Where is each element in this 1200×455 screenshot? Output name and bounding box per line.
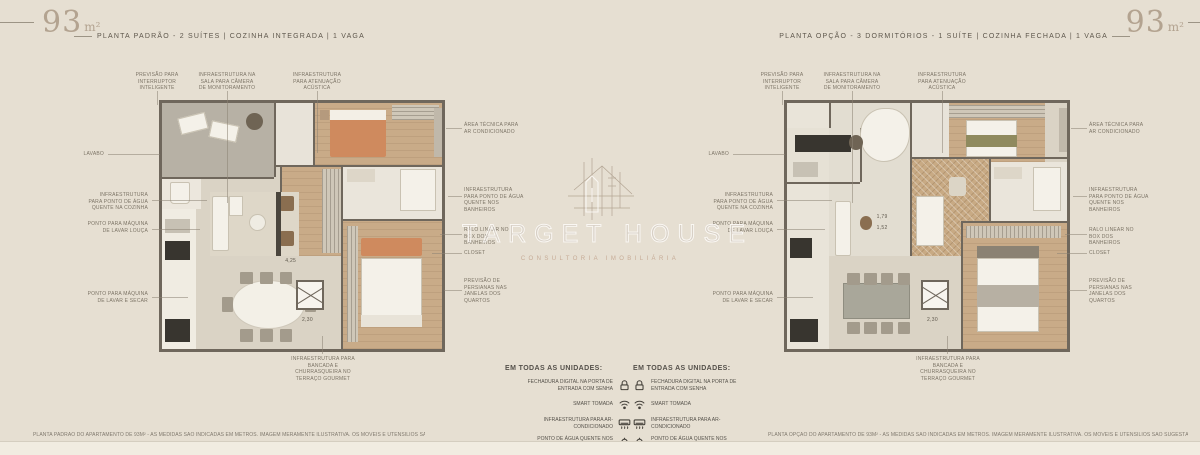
dining-chair [240,329,253,341]
pouf [280,196,294,211]
plant [849,135,863,150]
ac-technical-area [1059,108,1067,152]
callout-ac-area: ÁREA TÉCNICA PARA AR CONDICIONADO [464,122,520,135]
callout-bbq-terrace: INFRAESTRUTURA PARA BANCADA E CHURRASQUE… [910,356,986,382]
callout-lavabo: LAVABO [62,151,104,158]
disclaimer-left: PLANTA PADRÃO DO APARTAMENTO DE 93M² - A… [33,432,425,438]
wall [829,103,831,128]
washer [165,319,190,341]
watermark-tagline: CONSULTORIA IMOBILIÁRIA [462,256,738,262]
wifi-icon [633,398,646,411]
kitchen-sink [165,219,190,234]
dining-chair [864,322,877,334]
ac-unit-icon [633,417,646,430]
wardrobe [949,105,1044,117]
wardrobe [347,226,358,342]
leader-line [1071,128,1087,129]
dining-chair [260,329,273,341]
callout-washer-dryer: PONTO PARA MÁQUINA DE LAVAR E SECAR [711,291,773,304]
dining-table [843,283,910,320]
closet-cabinet [966,226,1061,238]
bed-pillows [330,110,386,120]
dimension-label: 1,79 [877,214,888,220]
callout-blinds: PREVISÃO DE PERSIANAS NAS JANELAS DOS QU… [464,278,516,304]
dining-chair [280,272,293,284]
pouf [280,231,294,246]
wifi-icon [618,398,631,411]
daybed [916,196,944,245]
wall [989,157,991,221]
feature-text: FECHADURA DIGITAL NA PORTA DE ENTRADA CO… [513,379,613,392]
floor-plan-sheet: 93 m² PLANTA PADRÃO - 2 SUÍTES | COZINHA… [0,0,1200,455]
dining-chair [864,273,877,285]
armchair [949,177,966,197]
callout-linear-drain: RALO LINEAR NO BOX DOS BANHEIROS [1089,227,1145,247]
header-right-edge-line [1188,22,1200,23]
leader-line [777,297,813,298]
tv-rack [276,192,280,256]
leader-line [1069,290,1087,291]
bottom-strip [0,441,1200,455]
dining-chair [847,322,860,334]
dining-chair [881,273,894,285]
washer [790,319,818,341]
wall [274,165,442,167]
leader-line [108,154,160,155]
bed-headboard [977,246,1039,258]
leader-line [1057,253,1087,254]
leader-line [322,336,323,354]
sofa [835,201,852,255]
leader-line [777,229,825,230]
smart-lock-icon [633,379,646,392]
leader-line [446,128,462,129]
right-plan-title: PLANTA OPÇÃO - 3 DORMITÓRIOS - 1 SUÍTE |… [779,33,1108,40]
dining-chair [881,322,894,334]
nightstand [320,110,328,120]
callout-acoustic: INFRAESTRUTURA PARA ATENUAÇÃO ACÚSTICA [913,72,971,92]
pouf [860,216,873,230]
cooktop [790,238,812,258]
leader-line [1065,234,1087,235]
leader-line [852,91,853,203]
leader-line [947,336,948,354]
right-area-unit: m² [1168,20,1184,34]
wall [961,221,1067,223]
bathtub [1033,167,1061,211]
leader-line [227,91,228,203]
bed-pillows [361,315,423,327]
dimension-label: 4,25 [285,258,296,264]
leader-line [733,154,785,155]
leader-line [942,91,943,153]
right-area-label: 93 m² [1126,8,1184,38]
callout-dishwasher: PONTO PARA MÁQUINA DE LAVAR LOUÇA [86,221,148,234]
left-area-label: 93 m² [42,8,100,38]
plant [246,113,263,130]
wall [961,221,963,349]
right-area-value: 93 [1126,8,1166,38]
leader-line [782,91,783,105]
leader-line [152,297,188,298]
feature-item: FECHADURA DIGITAL NA PORTA DE ENTRADA CO… [633,379,759,392]
floor-plan-option: 1,79 1,52 2,30 [784,100,1070,352]
cooktop [165,241,190,261]
leader-line [440,234,462,235]
elevator-shaft [296,280,324,310]
house-sketch-icon [462,158,738,220]
wall [910,103,912,256]
feature-item: INFRAESTRUTURA PARA AR-CONDICIONADO [633,417,759,430]
feature-text: SMART TOMADA [651,401,751,408]
coffee-table [249,214,266,231]
wall [787,182,860,184]
callout-ac-area: ÁREA TÉCNICA PARA AR CONDICIONADO [1089,122,1145,135]
callout-closet: CLOSET [1089,250,1129,257]
callout-smart-switch: PREVISÃO PARA INTERRUPTOR INTELIGENTE [753,72,811,92]
header-left-edge-line [0,22,34,23]
watermark: TARGET HOUSE CONSULTORIA IMOBILIÁRIA [462,158,738,262]
header-left-dash [74,36,92,37]
callout-hot-water-kitchen: INFRAESTRUTURA PARA PONTO DE ÁGUA QUENTE… [86,192,148,212]
feature-text: FECHADURA DIGITAL NA PORTA DE ENTRADA CO… [651,379,751,392]
feature-text: SMART TOMADA [513,401,613,408]
smart-lock-icon [618,379,631,392]
left-area-unit: m² [84,20,100,34]
bathroom [910,103,949,157]
ac-technical-area [434,108,442,157]
callout-lavabo: LAVABO [687,151,729,158]
dimension-label: 2,30 [927,317,938,323]
leader-line [444,290,462,291]
dining-table [232,280,305,329]
dining-chair [280,329,293,341]
leader-line [432,253,462,254]
callout-camera: INFRAESTRUTURA NA SALA PARA CÂMERA DE MO… [197,72,257,92]
callout-bbq-terrace: INFRAESTRUTURA PARA BANCADA E CHURRASQUE… [285,356,361,382]
bath-vanity [994,167,1022,179]
leader-line [317,91,318,153]
callout-washer-dryer: PONTO PARA MÁQUINA DE LAVAR E SECAR [86,291,148,304]
features-title: EM TODAS AS UNIDADES: [633,365,759,372]
feature-item: SMART TOMADA [505,398,631,411]
dining-chair [898,322,911,334]
bathtub [400,169,436,211]
callout-blinds: PREVISÃO DE PERSIANAS NAS JANELAS DOS QU… [1089,278,1141,304]
dining-chair [898,273,911,285]
leader-line [448,196,462,197]
bed-blanket-gray [977,285,1039,307]
callout-smart-switch: PREVISÃO PARA INTERRUPTOR INTELIGENTE [128,72,186,92]
wall [313,103,315,165]
leader-line [1073,196,1087,197]
callout-acoustic: INFRAESTRUTURA PARA ATENUAÇÃO ACÚSTICA [288,72,346,92]
dining-chair [240,272,253,284]
floor-plan-standard: 4,25 2,30 [159,100,445,352]
left-area-value: 93 [42,8,82,38]
bed-bench [361,238,423,255]
callout-camera: INFRAESTRUTURA NA SALA PARA CÂMERA DE MO… [822,72,882,92]
wall [341,219,442,221]
leader-line [157,91,158,105]
sofa-chaise [229,196,243,216]
watermark-brand: TARGET HOUSE [462,220,738,249]
wall [162,177,274,179]
bathroom-suite1 [274,103,313,165]
callout-hot-water-baths: INFRAESTRUTURA PARA PONTO DE ÁGUA QUENTE… [1089,187,1151,213]
left-plan-title: PLANTA PADRÃO - 2 SUÍTES | COZINHA INTEG… [97,33,365,40]
kitchen-counter [795,135,851,152]
dining-chair [260,272,273,284]
sofa [212,196,229,250]
dining-chair [847,273,860,285]
feature-text: INFRAESTRUTURA PARA AR-CONDICIONADO [651,417,751,430]
feature-item: SMART TOMADA [633,398,759,411]
feature-text: INFRAESTRUTURA PARA AR-CONDICIONADO [513,417,613,430]
elevator-shaft [921,280,949,310]
feature-item: INFRAESTRUTURA PARA AR-CONDICIONADO [505,417,631,430]
features-title: EM TODAS AS UNIDADES: [505,365,631,372]
dimension-label: 1,52 [877,225,888,231]
leader-line [777,200,832,201]
bed-blanket-green [966,135,1016,147]
closet-cabinet [322,169,342,253]
wall [341,165,343,350]
ac-unit-icon [618,417,631,430]
disclaimer-right: PLANTA OPÇÃO DO APARTAMENTO DE 93M² - AS… [768,432,1188,438]
leader-line [152,200,207,201]
bath-vanity [347,169,375,181]
kitchen-sink [793,162,818,177]
wardrobe [392,105,440,120]
dimension-label: 2,30 [302,317,313,323]
dining-chair [222,297,233,312]
feature-item: FECHADURA DIGITAL NA PORTA DE ENTRADA CO… [505,379,631,392]
leader-line [152,229,200,230]
